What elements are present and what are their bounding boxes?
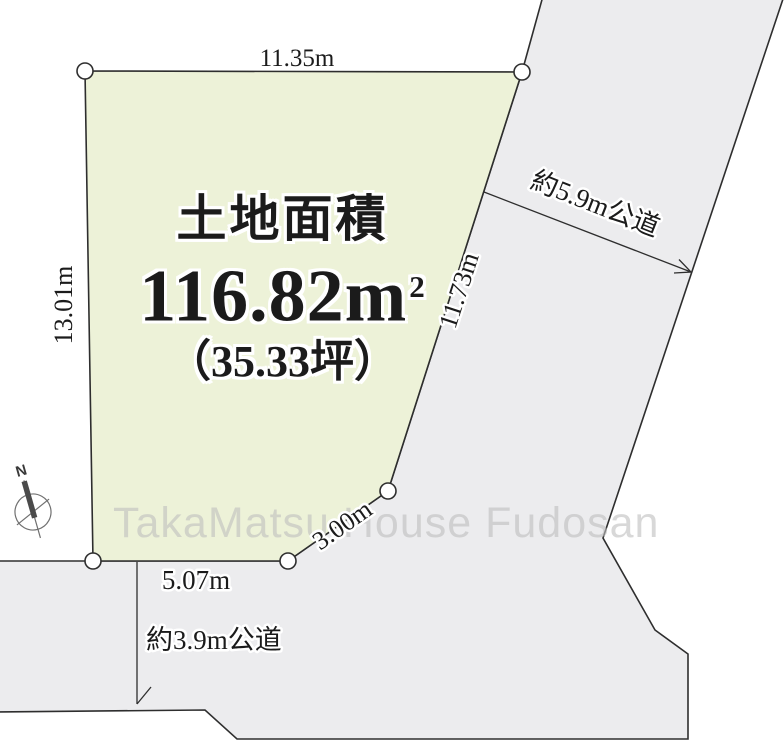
vertex-marker: [77, 63, 93, 79]
vertex-marker: [85, 553, 101, 569]
land-area-value: 116.82m2: [95, 248, 470, 335]
land-area-title: 土地面積: [95, 190, 470, 248]
dimension-label-bottom: 5.07m: [162, 565, 230, 595]
land-plot-diagram: TakaMatsu House Fudosan 11.35m 13.01m 11…: [0, 0, 784, 740]
vertex-marker: [514, 64, 530, 80]
compass-icon: N: [1, 458, 59, 543]
vertex-marker: [380, 483, 396, 499]
compass-north-label: N: [14, 461, 29, 480]
watermark-text: TakaMatsu House Fudosan: [113, 499, 659, 547]
dimension-label-left: 13.01m: [49, 266, 78, 345]
land-area-block: 土地面積 116.82m2 （35.33坪）: [95, 190, 470, 389]
vertex-marker: [280, 553, 296, 569]
land-area-value-number: 116.82m: [139, 255, 407, 337]
dimension-label-top: 11.35m: [260, 45, 335, 72]
road-bottom-label: 約3.9m公道: [146, 625, 282, 655]
land-area-value-sup: 2: [409, 269, 426, 304]
land-area-tsubo: （35.33坪）: [95, 335, 470, 389]
